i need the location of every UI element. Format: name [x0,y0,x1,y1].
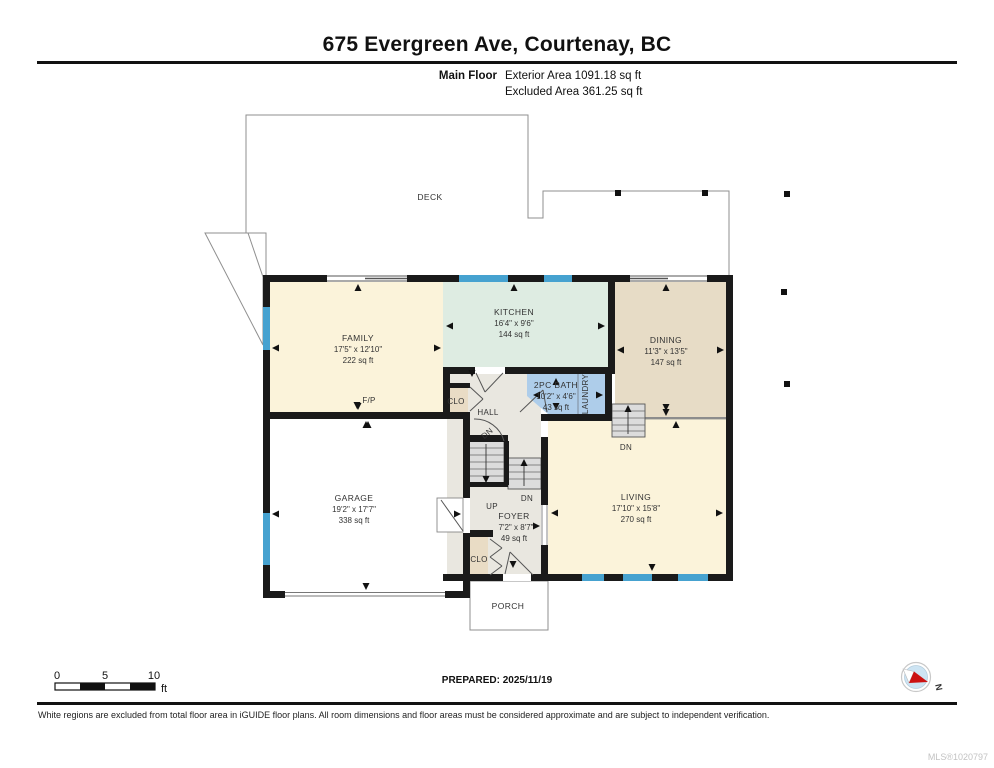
stairs-basement [468,441,504,485]
stairs-foyer [508,458,541,489]
living-area: 270 sq ft [621,515,652,524]
footer-divider [37,702,957,705]
prepared-date-label: PREPARED: 2025/11/19 [0,675,994,686]
up-label: UP [486,502,498,511]
garage-area: 338 sq ft [339,516,370,525]
kitchen-name: KITCHEN [494,307,534,317]
dining-area: 147 sq ft [651,358,682,367]
closet-foyer-label: CLO [470,555,487,564]
dn-living-label: DN [620,443,632,452]
bath-name: 2PC BATH [534,380,578,390]
fireplace-label: F/P [362,396,375,405]
family-dims: 17'5" x 12'10" [334,345,382,354]
kitchen-area: 144 sq ft [499,330,530,339]
porch-label: PORCH [492,601,525,611]
closet-hall-label: CLO [447,397,464,406]
garage-dims: 19'2" x 17'7" [332,505,376,514]
floorplan-page: 675 Evergreen Ave, Courtenay, BC Main Fl… [0,0,994,768]
laundry-label: LAUNDRY [581,374,590,415]
level-change-line [645,417,726,419]
stairs-living [612,404,645,437]
living-dims: 17'10" x 15'8" [612,504,660,513]
garage-name: GARAGE [335,493,374,503]
family-name: FAMILY [342,333,374,343]
foyer-name: FOYER [498,511,529,521]
family-area: 222 sq ft [343,356,374,365]
deck-label: DECK [417,192,442,202]
floor-plan-svg: DECK FAMILY 17'5" x 12'10" 222 sq ft KIT… [0,0,994,768]
foyer-area: 49 sq ft [501,534,528,543]
foyer-dims: 7'2" x 8'7" [499,523,534,532]
hall-label: HALL [477,408,498,417]
dining-name: DINING [650,335,682,345]
disclaimer-text: White regions are excluded from total fl… [38,710,938,720]
bath-area: 43 sq ft [543,403,570,412]
living-name: LIVING [621,492,651,502]
kitchen-dims: 16'4" x 9'6" [494,319,534,328]
mls-number: MLS®1020797 [928,752,988,762]
dn-foyer-label: DN [521,494,533,503]
bath-dims: 10'2" x 4'6" [536,392,576,401]
dining-dims: 11'3" x 13'5" [644,347,687,356]
